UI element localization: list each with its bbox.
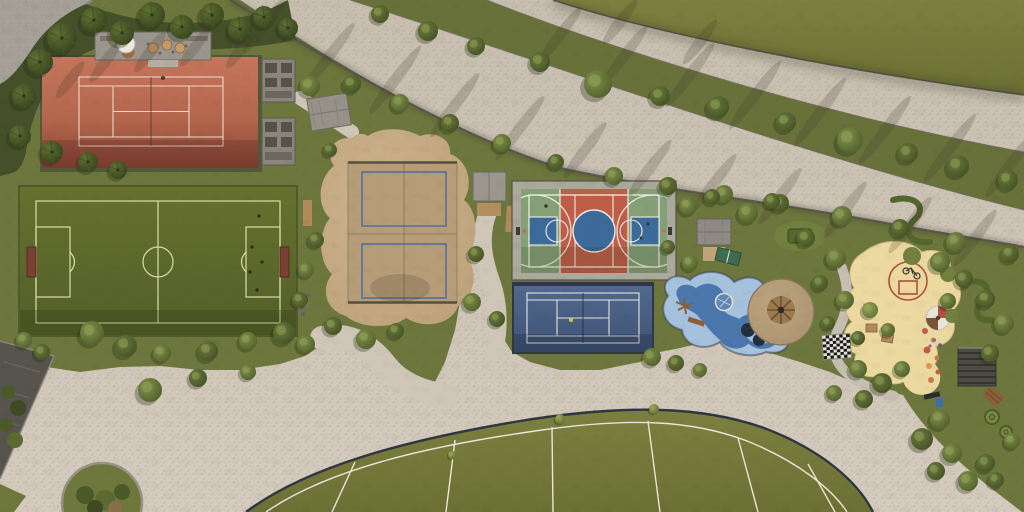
site-plan-svg: [0, 0, 1024, 512]
site-plan-render: [0, 0, 1024, 512]
texture-overlay: [0, 0, 1024, 512]
